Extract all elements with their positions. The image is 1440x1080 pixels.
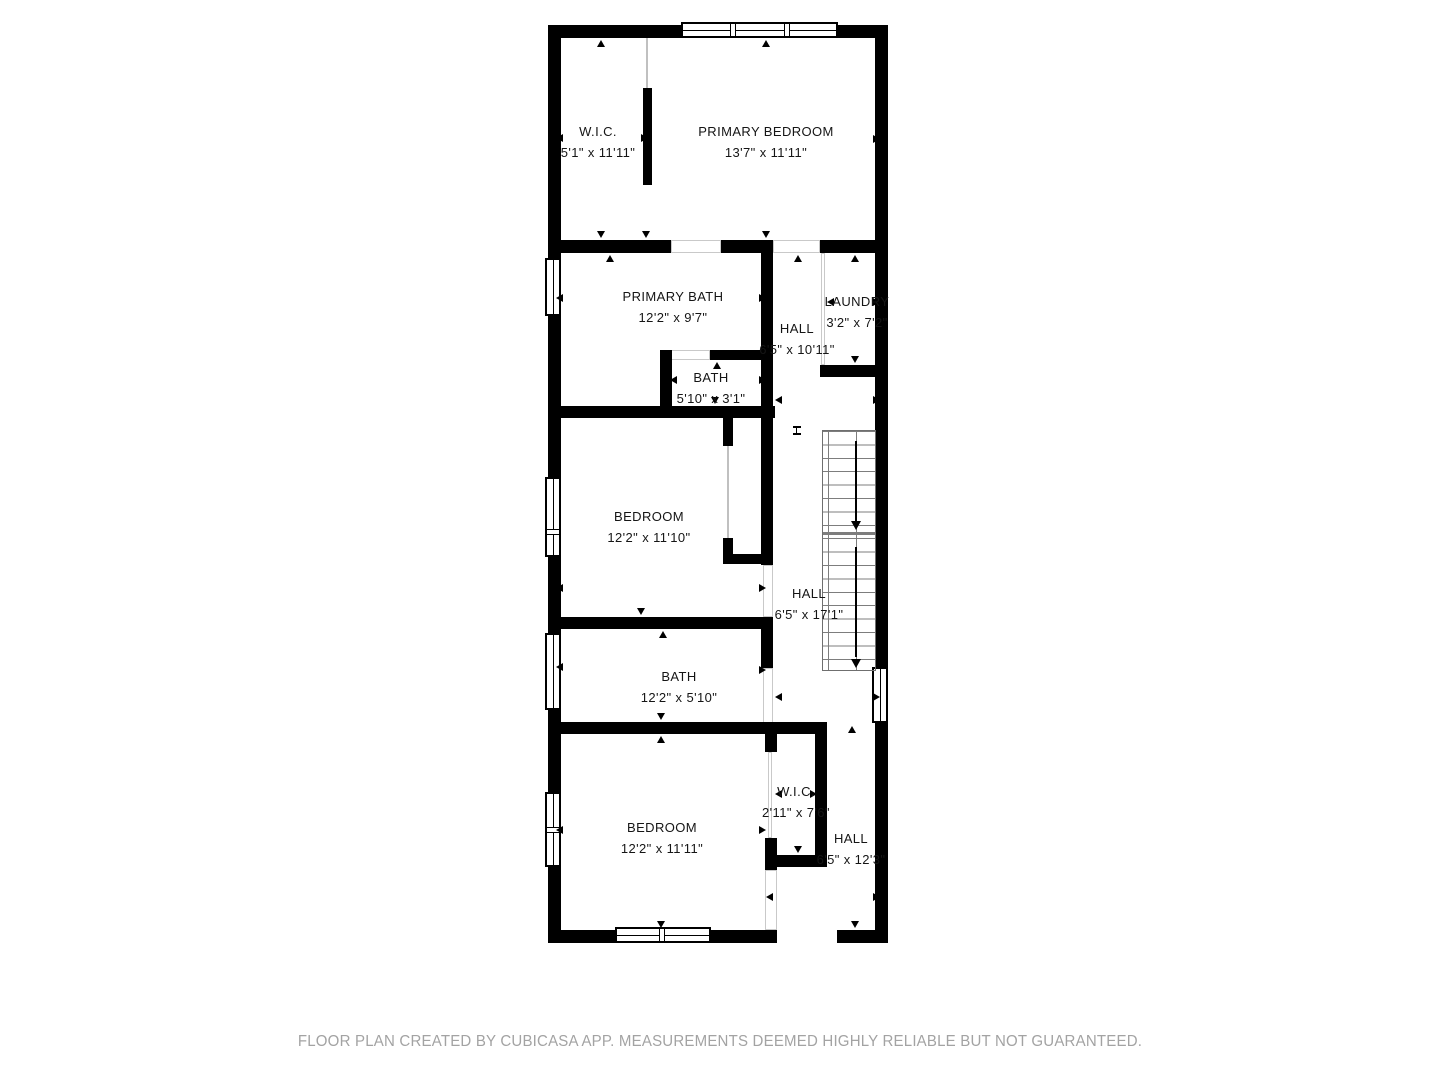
stair-direction-line <box>855 441 857 521</box>
room-dimensions: 12'2" x 11'11" <box>621 841 703 857</box>
measurement-arrow <box>657 713 665 720</box>
wall <box>765 930 777 943</box>
measurement-arrow <box>659 631 667 638</box>
room-dimensions: 12'2" x 5'10" <box>641 690 718 706</box>
measurement-arrow <box>762 231 770 238</box>
room-dimensions: 5'10" x 3'1" <box>677 391 746 407</box>
window-pane-line <box>553 479 554 555</box>
wall <box>548 25 684 38</box>
room-name: PRIMARY BEDROOM <box>698 124 834 140</box>
closet-line <box>727 446 729 538</box>
room-label-wic-lower: W.I.C. 2'11" x 7'6" <box>762 784 830 821</box>
room-label-bedroom-middle: BEDROOM 12'2" x 11'10" <box>607 509 690 546</box>
door-opening <box>668 350 710 360</box>
measurement-arrow <box>641 134 648 142</box>
room-dimensions: 13'7" x 11'11" <box>698 145 834 161</box>
floor-plan: W.I.C. 5'1" x 11'11" PRIMARY BEDROOM 13'… <box>0 0 1440 1080</box>
room-name: HALL <box>775 586 844 602</box>
room-label-bath-small: BATH 5'10" x 3'1" <box>677 370 746 407</box>
door-opening <box>763 668 773 723</box>
room-name: BEDROOM <box>621 820 703 836</box>
room-label-primary-bedroom: PRIMARY BEDROOM 13'7" x 11'11" <box>698 124 834 161</box>
measurement-arrow <box>713 362 721 369</box>
room-name: W.I.C. <box>561 124 636 140</box>
wall <box>837 930 888 943</box>
room-name: PRIMARY BATH <box>623 289 724 305</box>
wall <box>765 734 777 752</box>
stair-direction-arrow <box>851 521 861 530</box>
measurement-arrow <box>759 666 766 674</box>
room-label-hall-lower: HALL 6'5" x 12'3" <box>817 831 886 868</box>
window-pane-line <box>683 30 836 31</box>
door-opening <box>671 240 721 253</box>
room-label-primary-bath: PRIMARY BATH 12'2" x 9'7" <box>623 289 724 326</box>
room-label-hall-middle: HALL 6'5" x 17'1" <box>775 586 844 623</box>
stair-landing-line <box>823 532 875 535</box>
measurement-arrow <box>657 736 665 743</box>
staircase <box>822 430 876 671</box>
window <box>545 633 561 710</box>
door-pivot-icon <box>793 426 801 435</box>
measurement-arrow <box>759 294 766 302</box>
wall <box>710 350 765 360</box>
measurement-arrow <box>762 40 770 47</box>
door-opening <box>646 38 648 88</box>
measurement-arrow <box>851 921 859 928</box>
wall <box>548 722 827 734</box>
measurement-arrow <box>794 846 802 853</box>
room-label-bedroom-bottom: BEDROOM 12'2" x 11'11" <box>621 820 703 857</box>
room-name: HALL <box>817 831 886 847</box>
measurement-arrow <box>848 726 856 733</box>
room-dimensions: 12'2" x 9'7" <box>623 310 724 326</box>
wall <box>761 240 773 565</box>
room-name: BATH <box>677 370 746 386</box>
measurement-arrow <box>657 921 665 928</box>
window <box>615 927 711 943</box>
measurement-arrow <box>642 231 650 238</box>
wall <box>548 617 761 629</box>
wall <box>548 240 671 253</box>
window-pane-line <box>553 635 554 708</box>
window-mullion <box>659 929 665 941</box>
wall <box>761 617 773 668</box>
window <box>545 258 561 316</box>
measurement-arrow <box>637 608 645 615</box>
window-mullion <box>784 24 790 36</box>
window-pane-line <box>553 260 554 314</box>
door-opening <box>773 240 820 253</box>
stair-edge-line <box>828 431 829 670</box>
measurement-arrow <box>556 826 563 834</box>
room-dimensions: 6'5" x 17'1" <box>775 607 844 623</box>
room-dimensions: 3'2" x 7'2" <box>825 315 890 331</box>
wall <box>723 418 733 446</box>
measurement-arrow <box>775 693 782 701</box>
measurement-arrow <box>794 255 802 262</box>
room-dimensions: 6'5" x 10'11" <box>759 342 835 358</box>
wall <box>875 25 888 668</box>
measurement-arrow <box>606 255 614 262</box>
measurement-arrow <box>759 826 766 834</box>
measurement-arrow <box>873 893 880 901</box>
measurement-arrow <box>851 356 859 363</box>
room-label-bath-main: BATH 12'2" x 5'10" <box>641 669 718 706</box>
room-dimensions: 5'1" x 11'11" <box>561 145 636 161</box>
room-name: HALL <box>759 321 835 337</box>
window-mullion <box>730 24 736 36</box>
wall <box>548 406 775 418</box>
measurement-arrow <box>873 396 880 404</box>
room-name: LAUNDRY <box>825 294 890 310</box>
wall <box>820 365 888 377</box>
wall <box>820 240 888 253</box>
measurement-arrow <box>873 693 880 701</box>
window-pane-line <box>880 669 881 721</box>
room-dimensions: 2'11" x 7'6" <box>762 805 830 821</box>
measurement-arrow <box>766 893 773 901</box>
wall <box>723 554 772 564</box>
measurement-arrow <box>873 135 880 143</box>
room-label-wic-upper: W.I.C. 5'1" x 11'11" <box>561 124 636 161</box>
room-dimensions: 6'5" x 12'3" <box>817 852 886 868</box>
measurement-arrow <box>556 663 563 671</box>
stair-direction-line <box>855 547 857 657</box>
measurement-arrow <box>851 255 859 262</box>
measurement-arrow <box>597 40 605 47</box>
measurement-arrow <box>556 584 563 592</box>
wall <box>548 316 561 477</box>
measurement-arrow <box>556 294 563 302</box>
room-label-hall-upper: HALL 6'5" x 10'11" <box>759 321 835 358</box>
room-label-laundry: LAUNDRY 3'2" x 7'2" <box>825 294 890 331</box>
window-mullion <box>547 529 559 535</box>
measurement-arrow <box>597 231 605 238</box>
window <box>545 477 561 557</box>
floor-plan-page: W.I.C. 5'1" x 11'11" PRIMARY BEDROOM 13'… <box>0 0 1440 1080</box>
room-name: W.I.C. <box>762 784 830 800</box>
room-dimensions: 12'2" x 11'10" <box>607 530 690 546</box>
measurement-arrow <box>775 396 782 404</box>
stair-direction-arrow <box>851 659 861 668</box>
measurement-arrow <box>759 376 766 384</box>
room-name: BEDROOM <box>607 509 690 525</box>
window <box>681 22 838 38</box>
wall <box>548 930 615 943</box>
measurement-arrow <box>759 584 766 592</box>
disclaimer-text: FLOOR PLAN CREATED BY CUBICASA APP. MEAS… <box>43 1033 1397 1051</box>
room-name: BATH <box>641 669 718 685</box>
